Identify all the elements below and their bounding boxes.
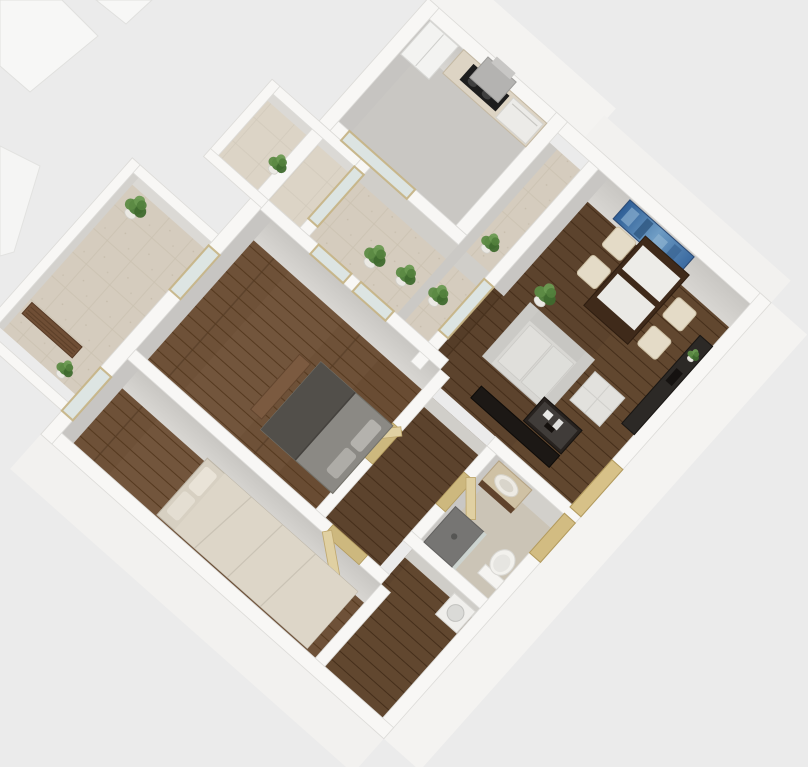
bathroom-door-leaf bbox=[466, 477, 476, 519]
floorplan-scene bbox=[0, 0, 808, 767]
floorplan-3d-render bbox=[0, 0, 808, 767]
